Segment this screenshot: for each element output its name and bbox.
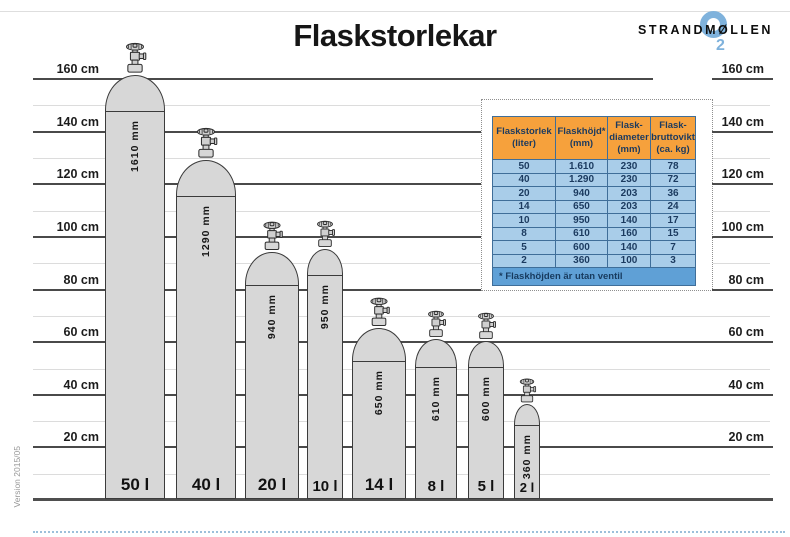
table-row-10: 1095014017 — [493, 213, 695, 227]
right-axis-label-20: 20 cm — [712, 429, 764, 445]
cylinder-40l: 1290 mm40 l — [176, 160, 237, 499]
right-axis-label-100: 100 cm — [712, 219, 764, 235]
logo-brand-text: STRANDMØLLEN — [638, 23, 783, 37]
left-axis-label-100: 100 cm — [33, 219, 99, 235]
right-axis-label-120: 120 cm — [712, 166, 764, 182]
volume-label: 50 l — [106, 475, 165, 495]
left-axis-label-60: 60 cm — [33, 324, 99, 340]
right-axis-label-80: 80 cm — [712, 272, 764, 288]
table-header-cell-3: Flask- bruttovikt (ca. kg) — [650, 117, 695, 159]
height-mm-label: 360 mm — [521, 434, 533, 479]
height-mm-label: 940 mm — [266, 294, 278, 339]
table-cell-2-1: 940 — [555, 186, 607, 200]
height-mm-label: 950 mm — [319, 284, 331, 329]
table-row-5: 56001407 — [493, 240, 695, 254]
right-axis-label-160: 160 cm — [712, 61, 764, 77]
table-row-8: 861016015 — [493, 227, 695, 241]
shoulder-line — [515, 425, 539, 426]
o2-subscript: 2 — [716, 37, 725, 55]
right-tick-120 — [712, 183, 773, 185]
valve — [259, 221, 284, 257]
shoulder-line — [416, 367, 456, 368]
left-axis-label-40: 40 cm — [33, 377, 99, 393]
height-mm-label: 1610 mm — [129, 120, 141, 172]
bottom-dotted-rule — [33, 531, 785, 533]
table-cell-5-0: 8 — [493, 227, 555, 241]
valve — [313, 220, 336, 254]
table-cell-5-1: 610 — [555, 227, 607, 241]
valve-icon — [259, 221, 284, 252]
table-header-cell-0: Flaskstorlek (liter) — [493, 117, 555, 159]
table-cell-4-0: 10 — [493, 213, 555, 227]
cylinder-5l: 600 mm5 l — [468, 341, 505, 499]
volume-label: 2 l — [515, 480, 539, 495]
valve — [193, 127, 219, 165]
shoulder-line — [469, 367, 504, 368]
cylinder-10l: 950 mm10 l — [307, 249, 344, 499]
table-cell-1-3: 72 — [650, 173, 695, 187]
height-mm-label: 1290 mm — [200, 205, 212, 257]
table-cell-6-2: 140 — [607, 240, 650, 254]
volume-label: 8 l — [416, 478, 456, 495]
right-tick-80 — [712, 289, 773, 291]
right-tick-160 — [712, 78, 773, 80]
cylinder-2l: 360 mm2 l — [514, 404, 540, 499]
table-row-20: 2094020336 — [493, 186, 695, 200]
gridline-gap-patch — [653, 74, 712, 83]
version-label: Version 2015/05 — [12, 446, 22, 507]
volume-label: 40 l — [177, 475, 236, 495]
valve-icon — [517, 378, 538, 404]
valve — [424, 310, 447, 344]
table-cell-4-2: 140 — [607, 213, 650, 227]
table-cell-7-1: 360 — [555, 254, 607, 268]
table-cell-2-2: 203 — [607, 186, 650, 200]
height-mm-label: 610 mm — [430, 376, 442, 421]
table-header-cell-2: Flask- diameter (mm) — [607, 117, 650, 159]
table-cell-6-3: 7 — [650, 240, 695, 254]
table-cell-1-1: 1.290 — [555, 173, 607, 187]
table-row-14: 1465020324 — [493, 200, 695, 214]
valve-icon — [424, 310, 447, 339]
table-cell-7-0: 2 — [493, 254, 555, 268]
table-cell-2-0: 20 — [493, 186, 555, 200]
height-mm-label: 650 mm — [373, 370, 385, 415]
cylinder-50l: 1610 mm50 l — [105, 75, 166, 499]
table-row-2: 23601003 — [493, 254, 695, 268]
table-header-row: Flaskstorlek (liter)Flaskhöjd* (mm)Flask… — [493, 117, 695, 159]
valve-icon — [366, 297, 391, 328]
left-axis-label-80: 80 cm — [33, 272, 99, 288]
shoulder-line — [177, 196, 236, 197]
table-cell-4-1: 950 — [555, 213, 607, 227]
table-cell-6-1: 600 — [555, 240, 607, 254]
volume-label: 10 l — [308, 478, 343, 495]
shoulder-line — [106, 111, 165, 112]
valve-icon — [474, 312, 497, 341]
left-axis-label-120: 120 cm — [33, 166, 99, 182]
volume-label: 20 l — [246, 475, 297, 495]
table-cell-7-3: 3 — [650, 254, 695, 268]
volume-label: 14 l — [353, 475, 404, 495]
shoulder-line — [308, 275, 343, 276]
valve-icon — [313, 220, 336, 249]
right-tick-40 — [712, 394, 773, 396]
left-axis-label-160: 160 cm — [33, 61, 99, 77]
table-row-40: 401.29023072 — [493, 173, 695, 187]
valve-icon — [193, 127, 219, 160]
height-mm-label: 600 mm — [480, 376, 492, 421]
table-cell-0-0: 50 — [493, 159, 555, 173]
table-cell-2-3: 36 — [650, 186, 695, 200]
table-cell-1-2: 230 — [607, 173, 650, 187]
table-cell-0-3: 78 — [650, 159, 695, 173]
cylinder-8l: 610 mm8 l — [415, 339, 457, 499]
table-cell-5-2: 160 — [607, 227, 650, 241]
table-cell-0-1: 1.610 — [555, 159, 607, 173]
size-table-box: Flaskstorlek (liter)Flaskhöjd* (mm)Flask… — [481, 99, 713, 291]
right-tick-140 — [712, 131, 773, 133]
shoulder-line — [246, 285, 297, 286]
shoulder-line — [353, 361, 404, 362]
table-cell-0-2: 230 — [607, 159, 650, 173]
table-cell-7-2: 100 — [607, 254, 650, 268]
table-cell-5-3: 15 — [650, 227, 695, 241]
valve — [517, 378, 538, 409]
strandmollen-logo: STRANDMØLLEN 2 — [638, 10, 783, 62]
table-header-cell-1: Flaskhöjd* (mm) — [555, 117, 607, 159]
table-row-50: 501.61023078 — [493, 159, 695, 173]
table-cell-3-0: 14 — [493, 200, 555, 214]
left-axis-label-20: 20 cm — [33, 429, 99, 445]
valve — [366, 297, 391, 333]
table-cell-3-2: 203 — [607, 200, 650, 214]
volume-label: 5 l — [469, 478, 504, 495]
right-tick-20 — [712, 446, 773, 448]
cylinder-14l: 650 mm14 l — [352, 328, 405, 499]
table-cell-3-1: 650 — [555, 200, 607, 214]
right-tick-100 — [712, 236, 773, 238]
table-cell-1-0: 40 — [493, 173, 555, 187]
right-axis-label-60: 60 cm — [712, 324, 764, 340]
table-footnote: * Flaskhöjden är utan ventil — [493, 267, 695, 285]
size-table: Flaskstorlek (liter)Flaskhöjd* (mm)Flask… — [492, 116, 696, 286]
cylinder-20l: 940 mm20 l — [245, 252, 298, 499]
flaskstorlekar-infographic: Flaskstorlekar STRANDMØLLEN 2 20 cm20 cm… — [0, 0, 790, 537]
right-axis-label-140: 140 cm — [712, 114, 764, 130]
valve — [474, 312, 497, 346]
table-cell-3-3: 24 — [650, 200, 695, 214]
left-axis-label-140: 140 cm — [33, 114, 99, 130]
table-cell-6-0: 5 — [493, 240, 555, 254]
right-tick-60 — [712, 341, 773, 343]
table-cell-4-3: 17 — [650, 213, 695, 227]
right-axis-label-40: 40 cm — [712, 377, 764, 393]
